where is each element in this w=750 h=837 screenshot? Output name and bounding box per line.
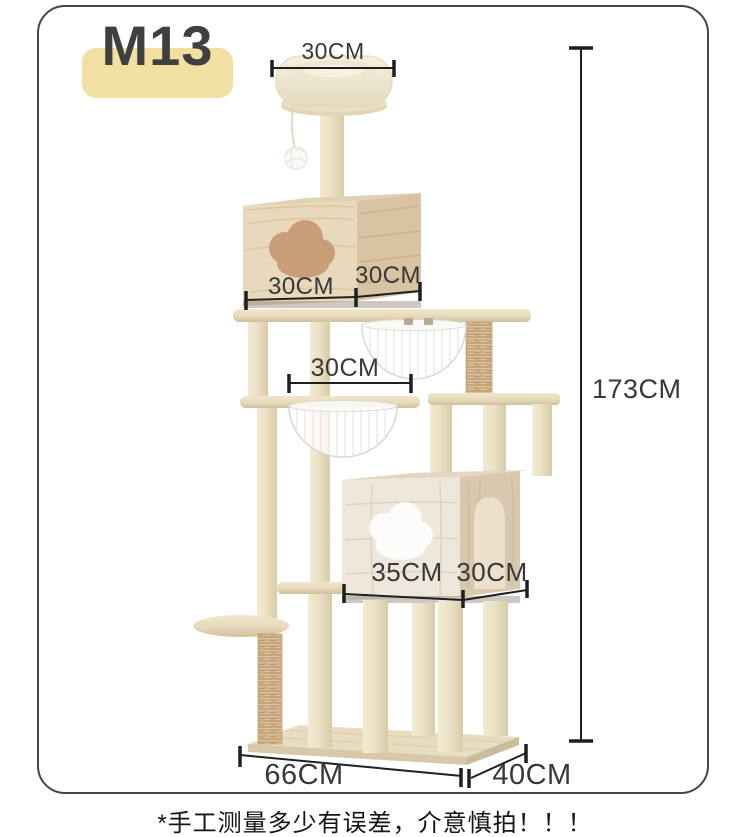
capsule-bowl-lower: [289, 401, 397, 473]
dim-total-height-label: 173CM: [592, 374, 682, 405]
dim-middle-platform-width-label: 30CM: [311, 354, 380, 383]
measurement-disclaimer: *手工测量多少有误差，介意慎拍！！！: [0, 803, 750, 837]
model-badge-label: M13: [82, 14, 233, 78]
sisal-post-upper: [466, 322, 492, 394]
dim-base-depth-label: 40CM: [492, 759, 571, 792]
dim-top-perch-width-label: 30CM: [301, 38, 364, 65]
step-platform: [277, 582, 345, 594]
right-platform: [428, 393, 560, 405]
dim-base-length-label: 66CM: [264, 759, 343, 792]
dim-upper-house-depth-label: 30CM: [355, 262, 421, 290]
dim-upper-house-width-label: 30CM: [268, 273, 334, 301]
cat-tree-illustration: [0, 0, 750, 837]
sisal-post-lower: [258, 634, 282, 744]
product-dimension-card: M13 30CM 30CM 30CM 30CM 173CM 35CM 30CM …: [0, 0, 750, 837]
hanging-ball-toy: [285, 108, 307, 169]
top-perch: [276, 56, 392, 208]
upper-platform: [233, 309, 531, 322]
dim-lower-house-depth-label: 30CM: [456, 557, 527, 588]
dim-lower-house-width-label: 35CM: [371, 557, 442, 588]
